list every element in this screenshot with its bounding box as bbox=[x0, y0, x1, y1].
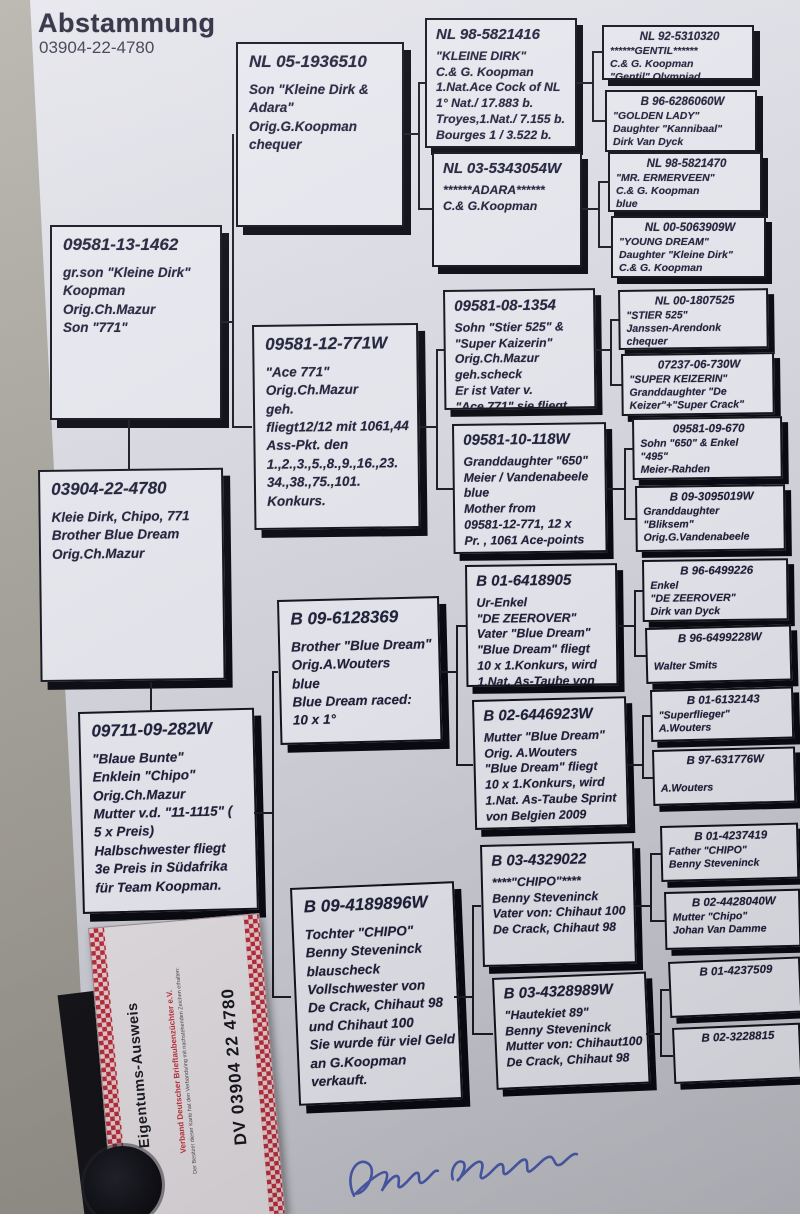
subject-ring-number: 03904-22-4780 bbox=[39, 38, 154, 58]
pedigree-text-line: fliegt12/12 mit 1061,44 bbox=[266, 417, 413, 437]
ring-number: B 09-3095019W bbox=[643, 490, 780, 504]
connector-line bbox=[610, 319, 619, 321]
connector-line bbox=[418, 426, 437, 428]
connector-line bbox=[634, 905, 651, 907]
pedigree-text-line: Dirk Van Dyck bbox=[613, 136, 752, 149]
connector-line bbox=[472, 905, 481, 907]
pedigree-text-line: Bourges 1 / 3.522 b. bbox=[436, 128, 572, 144]
connector-line bbox=[642, 715, 644, 778]
pedigree-text-line: Brother Blue Dream bbox=[52, 525, 218, 545]
ring-number: B 02-3228815 bbox=[680, 1029, 795, 1046]
pedigree-text-line: Koopman bbox=[63, 282, 216, 300]
pedigree-box-g3-2: B 09-6128369Brother "Blue Dream"Orig.A.W… bbox=[277, 596, 442, 745]
pedigree-box-g5-12: B 01-4237419Father "CHIPO"Benny Stevenin… bbox=[660, 823, 799, 882]
card-seal-stamp bbox=[84, 1146, 162, 1214]
pedigree-text-line: Keizer"+"Super Crack" bbox=[630, 398, 770, 413]
pedigree-box-g5-14: B 01-4237509 bbox=[668, 956, 800, 1017]
pedigree-text-line: Son "Kleine Dirk & bbox=[249, 81, 398, 99]
connector-line bbox=[472, 905, 474, 1034]
connector-line bbox=[418, 208, 433, 210]
connector-line bbox=[624, 448, 633, 450]
connector-line bbox=[436, 488, 453, 490]
ring-number: B 01-6132143 bbox=[658, 693, 788, 708]
pedigree-text-line: chequer bbox=[627, 334, 764, 349]
pedigree-text-line: Benny Steveninck bbox=[669, 856, 794, 872]
pedigree-box-g5-2: NL 98-5821470"MR. ERMERVEEN"C.& G. Koopm… bbox=[608, 152, 762, 212]
ring-number: B 01-4237419 bbox=[668, 829, 793, 844]
pedigree-box-g5-3: NL 00-5063909W"YOUNG DREAM"Daughter "Kle… bbox=[611, 216, 766, 278]
connector-line bbox=[626, 764, 643, 766]
connector-line bbox=[128, 420, 130, 470]
ring-number: NL 05-1936510 bbox=[249, 52, 398, 72]
pedigree-box-g5-9: B 96-6499228W Walter Smits bbox=[645, 624, 792, 684]
pedigree-box-g5-10: B 01-6132143"Superflieger"A.Wouters bbox=[650, 687, 794, 742]
connector-line bbox=[598, 246, 612, 248]
connector-line bbox=[577, 82, 593, 84]
connector-line bbox=[418, 82, 426, 84]
ring-number: 09581-08-1354 bbox=[454, 296, 590, 315]
connector-line bbox=[436, 349, 438, 489]
pedigree-text-line: C.& G. Koopman bbox=[436, 65, 572, 81]
pedigree-text-line: blue bbox=[464, 485, 602, 502]
pedigree-text-line: Ass-Pkt. den bbox=[266, 435, 413, 455]
connector-line bbox=[582, 208, 599, 210]
ring-number: B 02-6446923W bbox=[483, 704, 621, 724]
pedigree-text-line: 1.Nat. As-Taube von bbox=[477, 673, 613, 687]
pedigree-text-line: Dirk van Dyck bbox=[651, 604, 784, 619]
pedigree-box-subject: 03904-22-4780Kleie Dirk, Chipo, 771Broth… bbox=[38, 468, 226, 682]
pedigree-box-g4-5: B 02-6446923WMutter "Blue Dream"Orig. A.… bbox=[472, 696, 629, 830]
ring-number: B 96-6499226 bbox=[650, 564, 783, 578]
pedigree-text-line: Son "771" bbox=[63, 319, 216, 337]
ring-number: B 01-4237509 bbox=[676, 963, 795, 980]
card-ring-number: DV 03904 22 4780 bbox=[218, 987, 252, 1146]
pedigree-box-g4-3: 09581-10-118WGranddaughter "650"Meier / … bbox=[452, 422, 608, 554]
pedigree-text-line: Sohn "Stier 525" & bbox=[454, 319, 590, 336]
connector-line bbox=[456, 625, 458, 765]
pedigree-text-line: Meier-Rahden bbox=[641, 462, 778, 477]
pedigree-text-line: ******ADARA****** bbox=[443, 183, 577, 199]
pedigree-text-line: geh.scheck bbox=[455, 366, 591, 383]
connector-line bbox=[418, 82, 420, 210]
pedigree-text-line: Orig.Ch.Mazur bbox=[63, 301, 216, 319]
pedigree-text-line: 1.Nat.Ace Cock of NL bbox=[436, 80, 572, 96]
pedigree-text-line: Orig.G.Koopman bbox=[249, 118, 398, 136]
pedigree-text-line: 1° Nat./ 17.883 b. bbox=[436, 96, 572, 112]
connector-line bbox=[272, 671, 274, 997]
pedigree-text-line: Ur-Enkel bbox=[476, 594, 612, 611]
connector-line bbox=[436, 349, 444, 351]
ring-number: 09711-09-282W bbox=[91, 718, 248, 742]
connector-line bbox=[660, 1055, 673, 1057]
pedigree-text-line: "Ace 771" bbox=[265, 362, 412, 382]
pedigree-box-g4-6: B 03-4329022****"CHIPO"****Benny Steveni… bbox=[480, 841, 637, 967]
connector-line bbox=[617, 625, 635, 627]
page-title: Abstammung bbox=[38, 8, 216, 39]
connector-line bbox=[646, 1033, 661, 1035]
connector-line bbox=[595, 349, 611, 351]
connector-line bbox=[610, 384, 622, 386]
pedigree-text-line: 10 x 1° bbox=[293, 709, 436, 731]
pedigree-text-line: Granddaughter "650" bbox=[463, 453, 601, 470]
pedigree-text-line: Daughter "Kannibaal" bbox=[613, 123, 752, 136]
ring-number: NL 98-5821470 bbox=[616, 158, 757, 170]
connector-line bbox=[642, 777, 653, 779]
pedigree-text-line: "YOUNG DREAM" bbox=[619, 236, 761, 249]
pedigree-text-line: ******GENTIL****** bbox=[610, 45, 749, 58]
connector-line bbox=[592, 51, 603, 53]
pedigree-text-line: Orig.Ch.Mazur bbox=[52, 544, 218, 564]
ring-number: 09581-09-670 bbox=[640, 422, 777, 436]
pedigree-box-g3-0: NL 05-1936510Son "Kleine Dirk &Adara"Ori… bbox=[236, 42, 404, 227]
connector-line bbox=[454, 996, 473, 998]
pedigree-text-line: Troyes,1.Nat./ 7.155 b. bbox=[436, 112, 572, 128]
ring-number: B 09-4189896W bbox=[303, 891, 449, 917]
pedigree-text-line: Orig.G.Vandenabeele bbox=[644, 530, 781, 545]
pedigree-text-line: C.& G.Koopman bbox=[443, 199, 577, 215]
connector-line bbox=[660, 989, 662, 1056]
pedigree-text-line: "KLEINE DIRK" bbox=[436, 49, 572, 65]
pedigree-text-line: von Belgien 2009 bbox=[486, 806, 624, 825]
ring-number: NL 00-5063909W bbox=[619, 222, 761, 234]
connector-line bbox=[660, 989, 669, 991]
connector-line bbox=[650, 853, 652, 921]
connector-line bbox=[650, 920, 665, 922]
ring-number: B 96-6286060W bbox=[613, 96, 752, 108]
pedigree-text-line: Mutter "Blue Dream" bbox=[484, 727, 622, 746]
pedigree-text-line: blue bbox=[616, 198, 757, 211]
connector-line bbox=[610, 319, 612, 385]
pedigree-text-line: "Blue Dream" fliegt bbox=[477, 641, 613, 658]
pedigree-text-line: Vater "Blue Dream" bbox=[477, 626, 613, 643]
pedigree-box-dam: 09711-09-282W"Blaue Bunte"Enklein "Chipo… bbox=[78, 708, 259, 914]
connector-line bbox=[472, 1033, 493, 1035]
pedigree-box-g5-15: B 02-3228815 bbox=[672, 1023, 800, 1084]
connector-line bbox=[592, 51, 594, 121]
pedigree-box-g5-6: 09581-09-670Sohn "650" & Enkel"495"Meier… bbox=[632, 416, 783, 480]
pedigree-text-line: Adara" bbox=[249, 99, 398, 117]
pedigree-text-line: Pr. , 1061 Ace-points bbox=[464, 532, 602, 549]
pedigree-text-line: Mother from bbox=[464, 500, 602, 517]
connector-line bbox=[634, 655, 646, 657]
connector-line bbox=[598, 181, 609, 183]
pedigree-text-line: Meier / Vandenabeele bbox=[464, 469, 602, 486]
ring-number: 09581-12-771W bbox=[265, 333, 412, 355]
connector-line bbox=[606, 488, 625, 490]
pedigree-text-line: Orig.Ch.Mazur bbox=[455, 351, 591, 368]
pedigree-text-line: 10 x 1.Konkurs, wird bbox=[477, 657, 613, 674]
pedigree-text-line: De Crack, Chihaut 98 bbox=[493, 920, 631, 939]
pedigree-text-line: "GOLDEN LADY" bbox=[613, 110, 752, 123]
pedigree-text-line: Walter Smits bbox=[654, 658, 787, 674]
pedigree-text-line: Er ist Vater v. bbox=[455, 382, 591, 399]
connector-line bbox=[456, 764, 473, 766]
pedigree-box-g5-5: 07237-06-730W"SUPER KEIZERIN"Granddaught… bbox=[621, 352, 775, 416]
connector-line bbox=[232, 426, 252, 428]
connector-line bbox=[598, 181, 600, 247]
pedigree-text-line: für Team Koopman. bbox=[95, 875, 252, 897]
pedigree-text-line: 09581-12-771, 12 x bbox=[464, 516, 602, 533]
pedigree-box-g3-1: 09581-12-771W"Ace 771"Orig.Ch.Mazurgeh.f… bbox=[252, 323, 420, 530]
connector-line bbox=[254, 812, 273, 814]
pedigree-box-g4-1: NL 03-5343054W******ADARA******C.& G.Koo… bbox=[432, 152, 582, 267]
pedigree-text-line: "MR. ERMERVEEN" bbox=[616, 172, 757, 185]
connector-line bbox=[456, 625, 466, 627]
pedigree-text-line: "Ace 771" sie fliegt bbox=[455, 398, 591, 410]
ring-number: 03904-22-4780 bbox=[51, 478, 217, 500]
ring-number: NL 98-5821416 bbox=[436, 26, 572, 43]
pedigree-text-line: 1.,2.,3.,5.,8.,9.,16.,23. bbox=[267, 454, 414, 474]
pedigree-text-line: C.& G. Koopman bbox=[610, 58, 749, 71]
connector-line bbox=[650, 853, 661, 855]
connector-line bbox=[624, 518, 636, 520]
connector-line bbox=[150, 682, 152, 712]
pedigree-text-line: chequer bbox=[249, 136, 398, 154]
pedigree-text-line: "DE ZEEROVER" bbox=[477, 610, 613, 627]
ring-number: 09581-10-118W bbox=[463, 430, 601, 449]
ring-number: B 01-6418905 bbox=[476, 571, 612, 590]
pedigree-box-g5-13: B 02-4428040WMutter "Chipo"Johan Van Dam… bbox=[664, 889, 800, 950]
connector-line bbox=[592, 120, 606, 122]
connector-line bbox=[642, 715, 651, 717]
card-title: Eigentums-Ausweis bbox=[125, 1002, 154, 1149]
connector-line bbox=[272, 671, 278, 673]
ring-number: B 03-4329022 bbox=[491, 849, 629, 869]
pedigree-box-g5-1: B 96-6286060W"GOLDEN LADY"Daughter "Kann… bbox=[605, 90, 757, 152]
ring-number: NL 92-5310320 bbox=[610, 31, 749, 43]
pedigree-text-line: Johan Van Damme bbox=[673, 922, 796, 938]
pedigree-photo: Abstammung 03904-22-4780 09581-13-1462gr… bbox=[0, 0, 800, 1214]
ring-number: B 02-4428040W bbox=[672, 895, 795, 910]
ring-number: NL 03-5343054W bbox=[443, 160, 577, 177]
ring-number: 09581-13-1462 bbox=[63, 235, 216, 255]
pedigree-text-line: C.& G. Koopman bbox=[616, 185, 757, 198]
pedigree-box-g5-11: B 97-631776W A.Wouters bbox=[652, 747, 796, 806]
pedigree-box-g4-7: B 03-4328989W"Hautekiet 89"Benny Steveni… bbox=[492, 972, 651, 1090]
pedigree-box-g5-4: NL 00-1807525"STIER 525"Janssen-Arendonk… bbox=[618, 288, 769, 350]
pedigree-box-g4-0: NL 98-5821416"KLEINE DIRK"C.& G. Koopman… bbox=[425, 18, 577, 148]
connector-line bbox=[232, 134, 234, 427]
pedigree-box-g4-2: 09581-08-1354Sohn "Stier 525" &"Super Ka… bbox=[443, 288, 596, 410]
connector-line bbox=[272, 996, 291, 998]
connector-line bbox=[439, 671, 457, 673]
connector-line bbox=[404, 133, 419, 135]
ring-number: B 96-6499228W bbox=[653, 631, 786, 646]
ring-number: 07237-06-730W bbox=[629, 358, 769, 372]
pedigree-text-line: 34.,38.,75.,101. bbox=[267, 472, 414, 492]
pedigree-text-line: A.Wouters bbox=[661, 780, 791, 796]
pedigree-text-line: A.Wouters bbox=[659, 720, 789, 736]
pedigree-box-g3-3: B 09-4189896WTochter "CHIPO"Benny Steven… bbox=[290, 881, 463, 1106]
pedigree-box-sire: 09581-13-1462gr.son "Kleine Dirk"Koopman… bbox=[50, 225, 222, 420]
pedigree-text-line: Daughter "Kleine Dirk" bbox=[619, 249, 761, 262]
pedigree-text-line: gr.son "Kleine Dirk" bbox=[63, 264, 216, 282]
pedigree-box-g4-4: B 01-6418905Ur-Enkel"DE ZEEROVER"Vater "… bbox=[465, 563, 618, 687]
pedigree-text-line: "Gentil" Olympiad bbox=[610, 71, 749, 80]
connector-line bbox=[624, 448, 626, 519]
pedigree-text-line: C.& G. Koopman bbox=[619, 262, 761, 275]
pedigree-box-g5-8: B 96-6499226Enkel"DE ZEEROVER"Dirk van D… bbox=[642, 558, 789, 622]
pedigree-box-g5-7: B 09-3095019WGranddaughter"Bliksem"Orig.… bbox=[635, 484, 786, 552]
pedigree-text-line: Kleie Dirk, Chipo, 771 bbox=[51, 507, 217, 527]
ring-number: B 97-631776W bbox=[660, 753, 790, 768]
pedigree-text-line: geh. bbox=[266, 399, 413, 419]
pedigree-text-line: Konkurs. bbox=[267, 491, 414, 511]
pedigree-text-line: Orig.Ch.Mazur bbox=[266, 380, 413, 400]
pedigree-text-line: 1.Nat. As-Taube Sprint bbox=[485, 790, 623, 809]
connector-line bbox=[634, 590, 643, 592]
ring-number: NL 00-1807525 bbox=[626, 294, 763, 308]
pedigree-text-line: "Super Kaizerin" bbox=[455, 335, 591, 352]
ring-number: B 03-4328989W bbox=[503, 980, 642, 1003]
ring-number: B 09-6128369 bbox=[290, 606, 433, 629]
connector-line bbox=[634, 590, 636, 656]
pedigree-box-g5-0: NL 92-5310320******GENTIL******C.& G. Ko… bbox=[602, 25, 754, 80]
